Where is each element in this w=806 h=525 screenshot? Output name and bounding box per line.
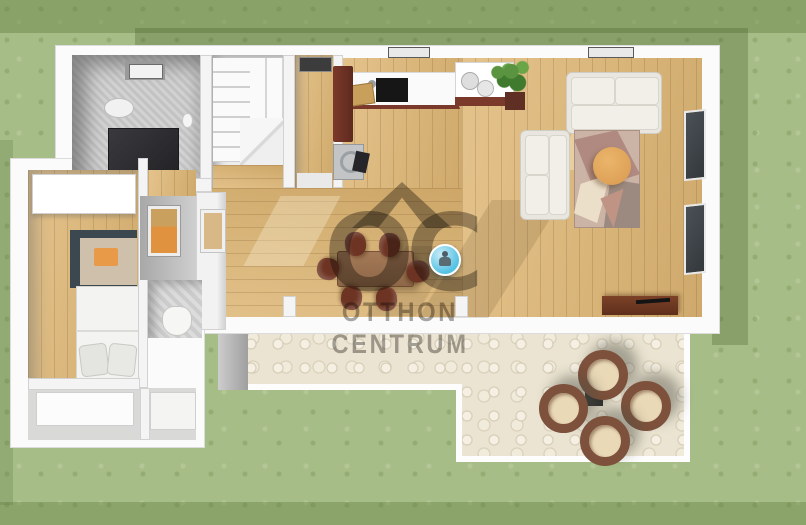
plant — [500, 58, 532, 96]
coffee-table — [593, 147, 631, 185]
wall — [283, 55, 295, 188]
floor-plan-scene: OC OTTHON CENTRUM — [0, 0, 806, 525]
terrace-chair-north — [578, 350, 628, 400]
entry-cabinet — [150, 392, 196, 430]
corridor-floor — [148, 170, 196, 198]
staircase-winder — [240, 118, 283, 170]
wall-stub — [283, 296, 296, 317]
wall — [28, 378, 140, 390]
tall-cabinet — [333, 66, 353, 142]
bathroom-sink — [104, 98, 134, 118]
terrace-chair-west — [539, 384, 588, 433]
closet — [295, 55, 333, 188]
wall — [200, 55, 212, 188]
watermark-line1: OTTHON — [312, 297, 488, 328]
pillow — [78, 342, 110, 377]
watermark-logo: OC — [300, 200, 500, 308]
stair-foot-floor — [213, 165, 283, 188]
bathroom-skylight — [129, 64, 163, 79]
terrace-chair-south — [580, 416, 630, 466]
interior-window — [201, 210, 225, 252]
sofa-large — [566, 72, 662, 134]
bed-fold-line — [76, 330, 138, 332]
sofa-small — [520, 130, 570, 220]
cooktop-sink — [376, 78, 408, 102]
toilet — [162, 306, 192, 336]
entry-cabinet — [36, 392, 134, 426]
plant-pot — [505, 92, 525, 110]
terrace-chair-east — [621, 381, 671, 431]
window — [684, 203, 706, 275]
grass-band-bottom — [0, 502, 806, 525]
wardrobe — [32, 174, 136, 214]
watermark-line2: CENTRUM — [312, 329, 488, 360]
toilet-roll-holder — [182, 113, 193, 128]
marker-figure-body — [439, 257, 451, 266]
interior-window-orange — [148, 206, 180, 256]
window — [684, 109, 706, 181]
island-base — [455, 97, 512, 106]
skylight-slot — [588, 47, 634, 58]
panorama-marker[interactable] — [429, 244, 461, 276]
wall — [140, 388, 150, 440]
closet-threshold — [297, 173, 332, 188]
skylight-slot — [388, 47, 430, 58]
pillow — [106, 343, 137, 378]
closet-shelf — [299, 57, 332, 72]
orange-cushion — [94, 248, 118, 266]
